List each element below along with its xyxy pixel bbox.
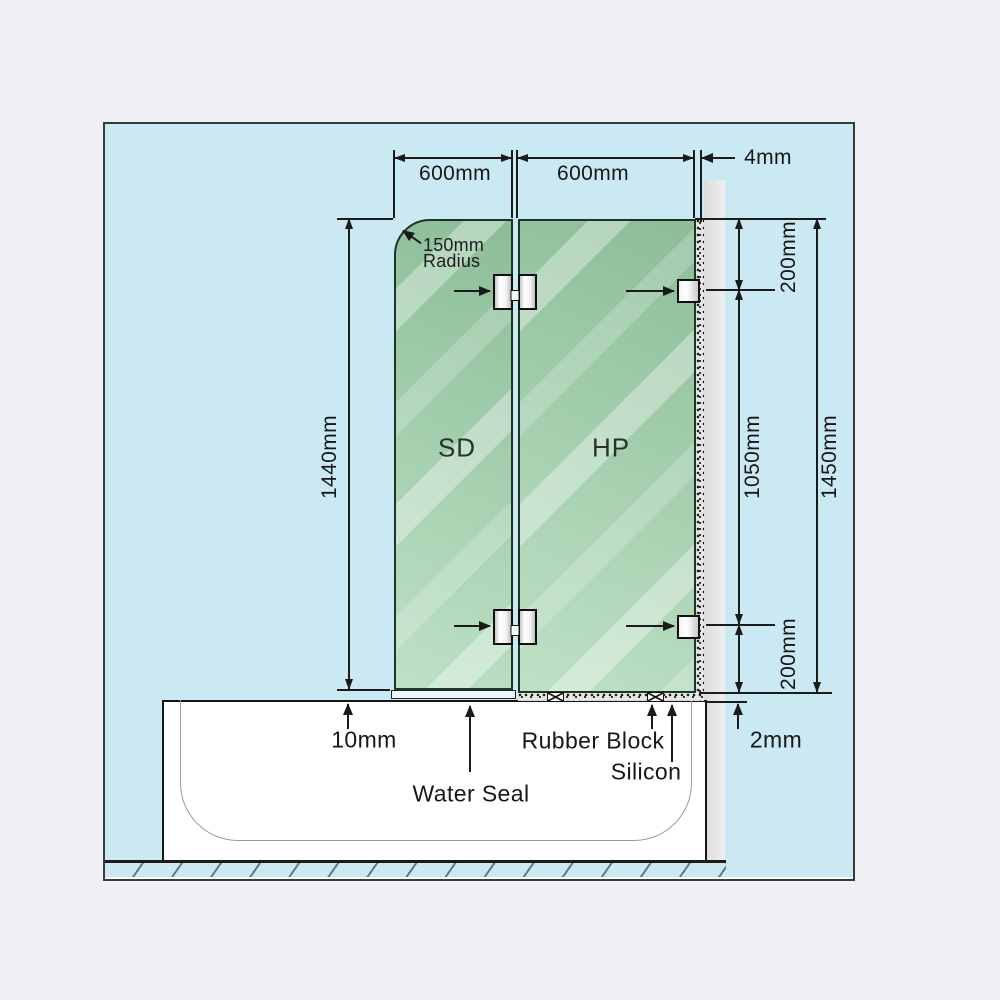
rubber-block-left bbox=[547, 692, 564, 702]
bottom-margin-strip bbox=[105, 877, 853, 881]
hinge-leaf bbox=[518, 274, 538, 310]
dim-label-tub-gap: 2mm bbox=[750, 727, 802, 754]
dim-label-bottom-gap: 10mm bbox=[331, 727, 397, 754]
rubber-block-right bbox=[647, 692, 664, 702]
dim-label-hp-height: 1450mm bbox=[818, 415, 842, 499]
tick-line bbox=[695, 218, 826, 220]
water-seal-label: Water Seal bbox=[413, 781, 530, 808]
bottom-gap-arrow bbox=[347, 704, 349, 729]
hinge-top bbox=[493, 274, 537, 310]
rubber-block-arrow bbox=[651, 705, 653, 729]
hinge-pin bbox=[511, 290, 520, 301]
bracket-bottom-pointer-arrow bbox=[626, 625, 674, 627]
panel-label-sd: SD bbox=[438, 433, 476, 464]
tub-gap-arrow bbox=[737, 704, 739, 729]
dim-label-wall-gap: 4mm bbox=[744, 146, 792, 170]
water-seal-strip bbox=[391, 690, 516, 699]
dim-line-sd-height bbox=[348, 219, 350, 689]
hinge-bottom bbox=[493, 609, 537, 645]
silicon-label: Silicon bbox=[611, 759, 682, 786]
dim-label-bottom-bracket-offset: 200mm bbox=[777, 618, 801, 690]
dim-label-bracket-spacing: 1050mm bbox=[741, 415, 765, 499]
dim-label-sd-width: 600mm bbox=[419, 162, 491, 186]
wall bbox=[704, 180, 725, 861]
radius-label: 150mm Radius bbox=[423, 237, 484, 269]
diagram-frame: 600mm 600mm 4mm 150mm Radius 1440mm 200m… bbox=[103, 122, 855, 881]
dim-line-sd-width bbox=[395, 157, 511, 159]
hinge-pin bbox=[511, 625, 520, 636]
dim-label-top-bracket-offset: 200mm bbox=[777, 221, 801, 293]
dim-line-hp-width bbox=[518, 157, 693, 159]
floor-hatch bbox=[105, 863, 726, 877]
dim-arrow-wall-gap bbox=[702, 157, 735, 159]
dim-line-bottom-bracket-offset bbox=[738, 625, 740, 692]
dim-label-sd-height: 1440mm bbox=[318, 415, 342, 499]
dim-line-top-bracket-offset bbox=[738, 219, 740, 290]
silicon-arrow bbox=[671, 705, 673, 762]
wall-bracket-bottom bbox=[677, 615, 700, 639]
panel-label-hp: HP bbox=[592, 433, 630, 464]
hinge-bottom-pointer-arrow bbox=[454, 625, 490, 627]
wall-bracket-top bbox=[677, 279, 700, 303]
diagram-stage: 600mm 600mm 4mm 150mm Radius 1440mm 200m… bbox=[0, 0, 1000, 1000]
radius-word: Radius bbox=[423, 253, 484, 269]
bracket-top-pointer-arrow bbox=[626, 290, 674, 292]
hinge-leaf bbox=[518, 609, 538, 645]
dim-label-hp-width: 600mm bbox=[557, 162, 629, 186]
silicon-joint-bottom bbox=[518, 693, 704, 701]
dim-line-bracket-spacing bbox=[738, 290, 740, 624]
hinge-top-pointer-arrow bbox=[454, 290, 490, 292]
rubber-block-label: Rubber Block bbox=[522, 728, 665, 755]
water-seal-arrow bbox=[469, 706, 471, 772]
